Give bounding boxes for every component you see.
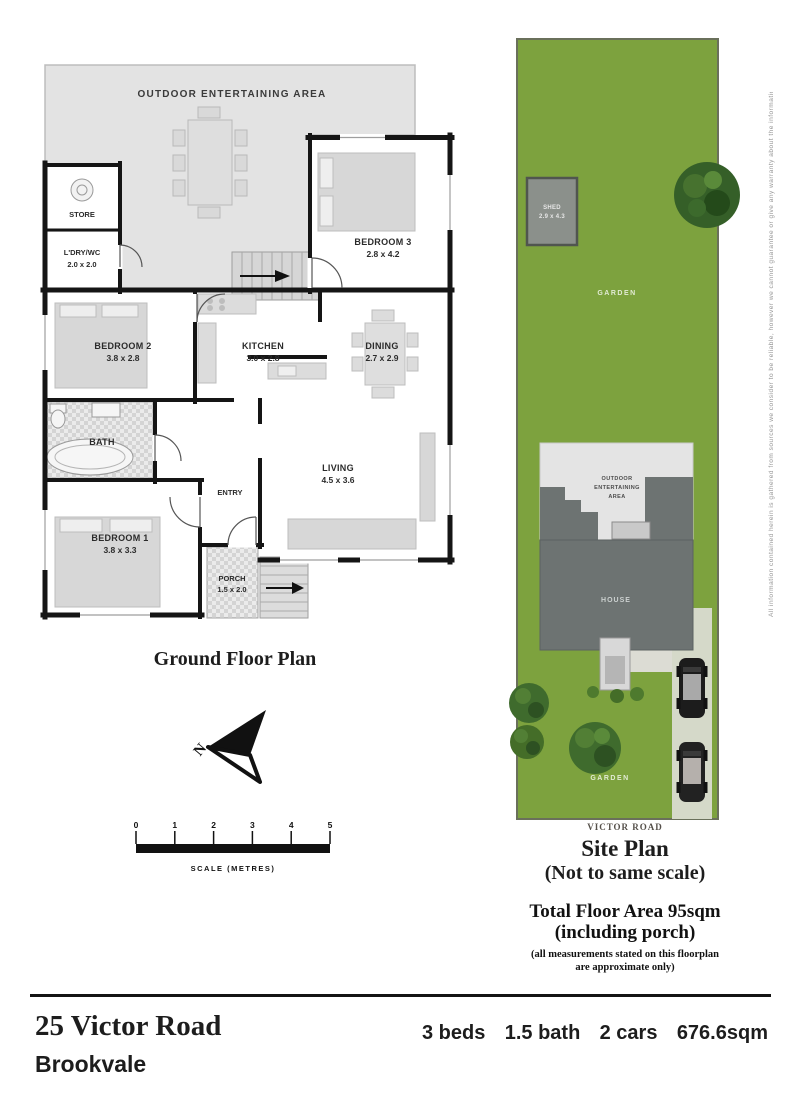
address-street: 25 Victor Road — [35, 1010, 221, 1043]
room-dims-porch: 1.5 x 2.0 — [217, 585, 246, 594]
scale-tick-1: 1 — [172, 820, 177, 830]
stat-beds: 3 beds — [422, 1022, 485, 1045]
room-dims-dining: 2.7 x 2.9 — [365, 353, 398, 363]
room-dims-bedroom1: 3.8 x 3.3 — [103, 545, 136, 555]
property-stats: 3 beds 1.5 bath 2 cars 676.6sqm — [422, 1022, 768, 1045]
car-icon-1 — [677, 658, 708, 718]
site-outdoor-line1: OUTDOOR — [602, 476, 633, 482]
room-dims-kitchen: 3.0 x 2.8 — [246, 353, 279, 363]
toilet — [51, 410, 65, 428]
room-dims-laundry: 2.0 x 2.0 — [67, 260, 96, 269]
car-icon-2 — [677, 742, 708, 802]
scale-tick-0: 0 — [134, 820, 139, 830]
garden-label-bottom: GARDEN — [590, 775, 629, 782]
floor-plan-title: Ground Floor Plan — [40, 648, 430, 671]
stairs — [232, 252, 320, 300]
ground-floor-plan-drawing: OUTDOOR ENTERTAINING AREA STORE L'DRY/WC… — [20, 5, 480, 650]
scale-tick-4: 4 — [289, 820, 294, 830]
site-plan-title: Site Plan — [490, 836, 760, 861]
site-shed: SHED 2.9 x 4.3 — [527, 178, 577, 245]
porch-steps — [260, 557, 308, 618]
vanity — [92, 403, 120, 417]
total-floor-area-line2: (including porch) — [480, 922, 770, 944]
compass-n-label: N — [191, 741, 210, 760]
tree-icon-top — [674, 162, 740, 228]
room-label-bedroom3: BEDROOM 3 — [354, 237, 411, 247]
road-label: VICTOR ROAD — [505, 822, 745, 832]
stat-land-size: 676.6sqm — [677, 1022, 768, 1045]
room-label-store: STORE — [69, 210, 95, 219]
total-floor-area-line1: Total Floor Area 95sqm — [480, 901, 770, 923]
room-label-living: LIVING — [322, 463, 354, 473]
room-label-kitchen: KITCHEN — [242, 341, 284, 351]
measurements-disclaimer-line1: (all measurements stated on this floorpl… — [470, 948, 780, 961]
stat-cars: 2 cars — [600, 1022, 658, 1045]
scale-bar: 0 1 2 3 4 5 SCALE (METRES) — [128, 818, 343, 880]
room-label-bedroom1: BEDROOM 1 — [91, 533, 148, 543]
site-outdoor-line2: ENTERTAINING — [594, 485, 640, 491]
room-label-bath: BATH — [89, 437, 115, 447]
side-disclaimer-text: All information contained herein is gath… — [768, 92, 781, 617]
room-dims-living: 4.5 x 3.6 — [321, 475, 354, 485]
house-label: HOUSE — [601, 597, 631, 604]
room-dims-bedroom2: 3.8 x 2.8 — [106, 353, 139, 363]
scale-caption: SCALE (METRES) — [191, 864, 276, 873]
property-address: 25 Victor Road Brookvale — [35, 1010, 221, 1078]
site-plan-subtitle: (Not to same scale) — [480, 862, 770, 885]
scale-tick-2: 2 — [211, 820, 216, 830]
room-label-bedroom2: BEDROOM 2 — [94, 341, 151, 351]
garden-label-top: GARDEN — [597, 290, 636, 297]
site-outdoor-line3: AREA — [608, 494, 625, 500]
room-dims-bedroom3: 2.8 x 4.2 — [366, 249, 399, 259]
footer-divider — [30, 994, 771, 997]
stat-bath: 1.5 bath — [505, 1022, 581, 1045]
room-label-entry: ENTRY — [217, 488, 242, 497]
address-suburb: Brookvale — [35, 1051, 221, 1078]
driveway-path — [625, 650, 672, 672]
scale-tick-5: 5 — [328, 820, 333, 830]
shed-dims: 2.9 x 4.3 — [539, 214, 565, 220]
north-compass-icon: N — [188, 702, 280, 790]
site-plan-drawing: SHED 2.9 x 4.3 GARDEN OUTDOOR ENTERTAINI… — [505, 38, 745, 820]
room-label-porch: PORCH — [218, 574, 245, 583]
scale-tick-3: 3 — [250, 820, 255, 830]
shed-label: SHED — [543, 205, 561, 211]
room-label-laundry: L'DRY/WC — [64, 248, 101, 257]
room-label-outdoor: OUTDOOR ENTERTAINING AREA — [138, 89, 327, 100]
room-label-dining: DINING — [365, 341, 398, 351]
floorplan-page: OUTDOOR ENTERTAINING AREA STORE L'DRY/WC… — [0, 0, 800, 1106]
measurements-disclaimer-line2: are approximate only) — [470, 961, 780, 974]
